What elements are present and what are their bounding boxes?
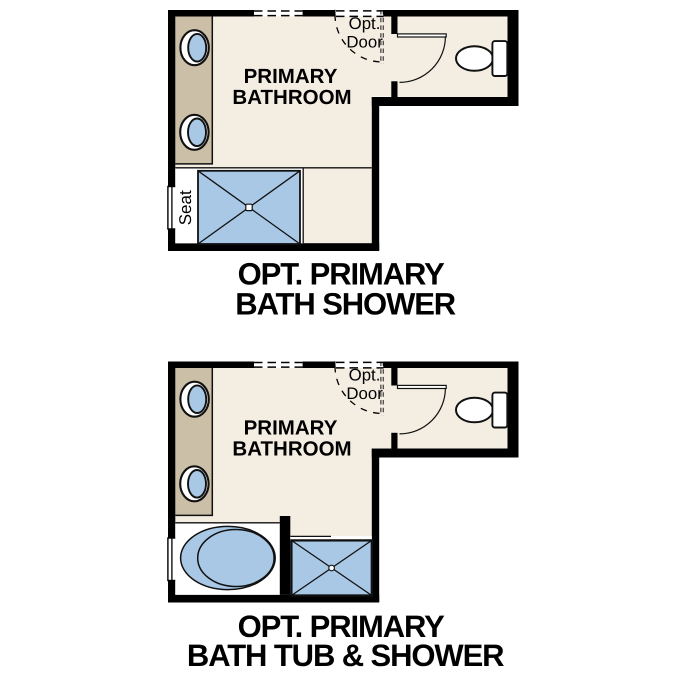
svg-text:BATH TUB & SHOWER: BATH TUB & SHOWER: [187, 638, 504, 673]
svg-text:Seat: Seat: [176, 190, 195, 225]
svg-text:BATH SHOWER: BATH SHOWER: [235, 286, 456, 321]
